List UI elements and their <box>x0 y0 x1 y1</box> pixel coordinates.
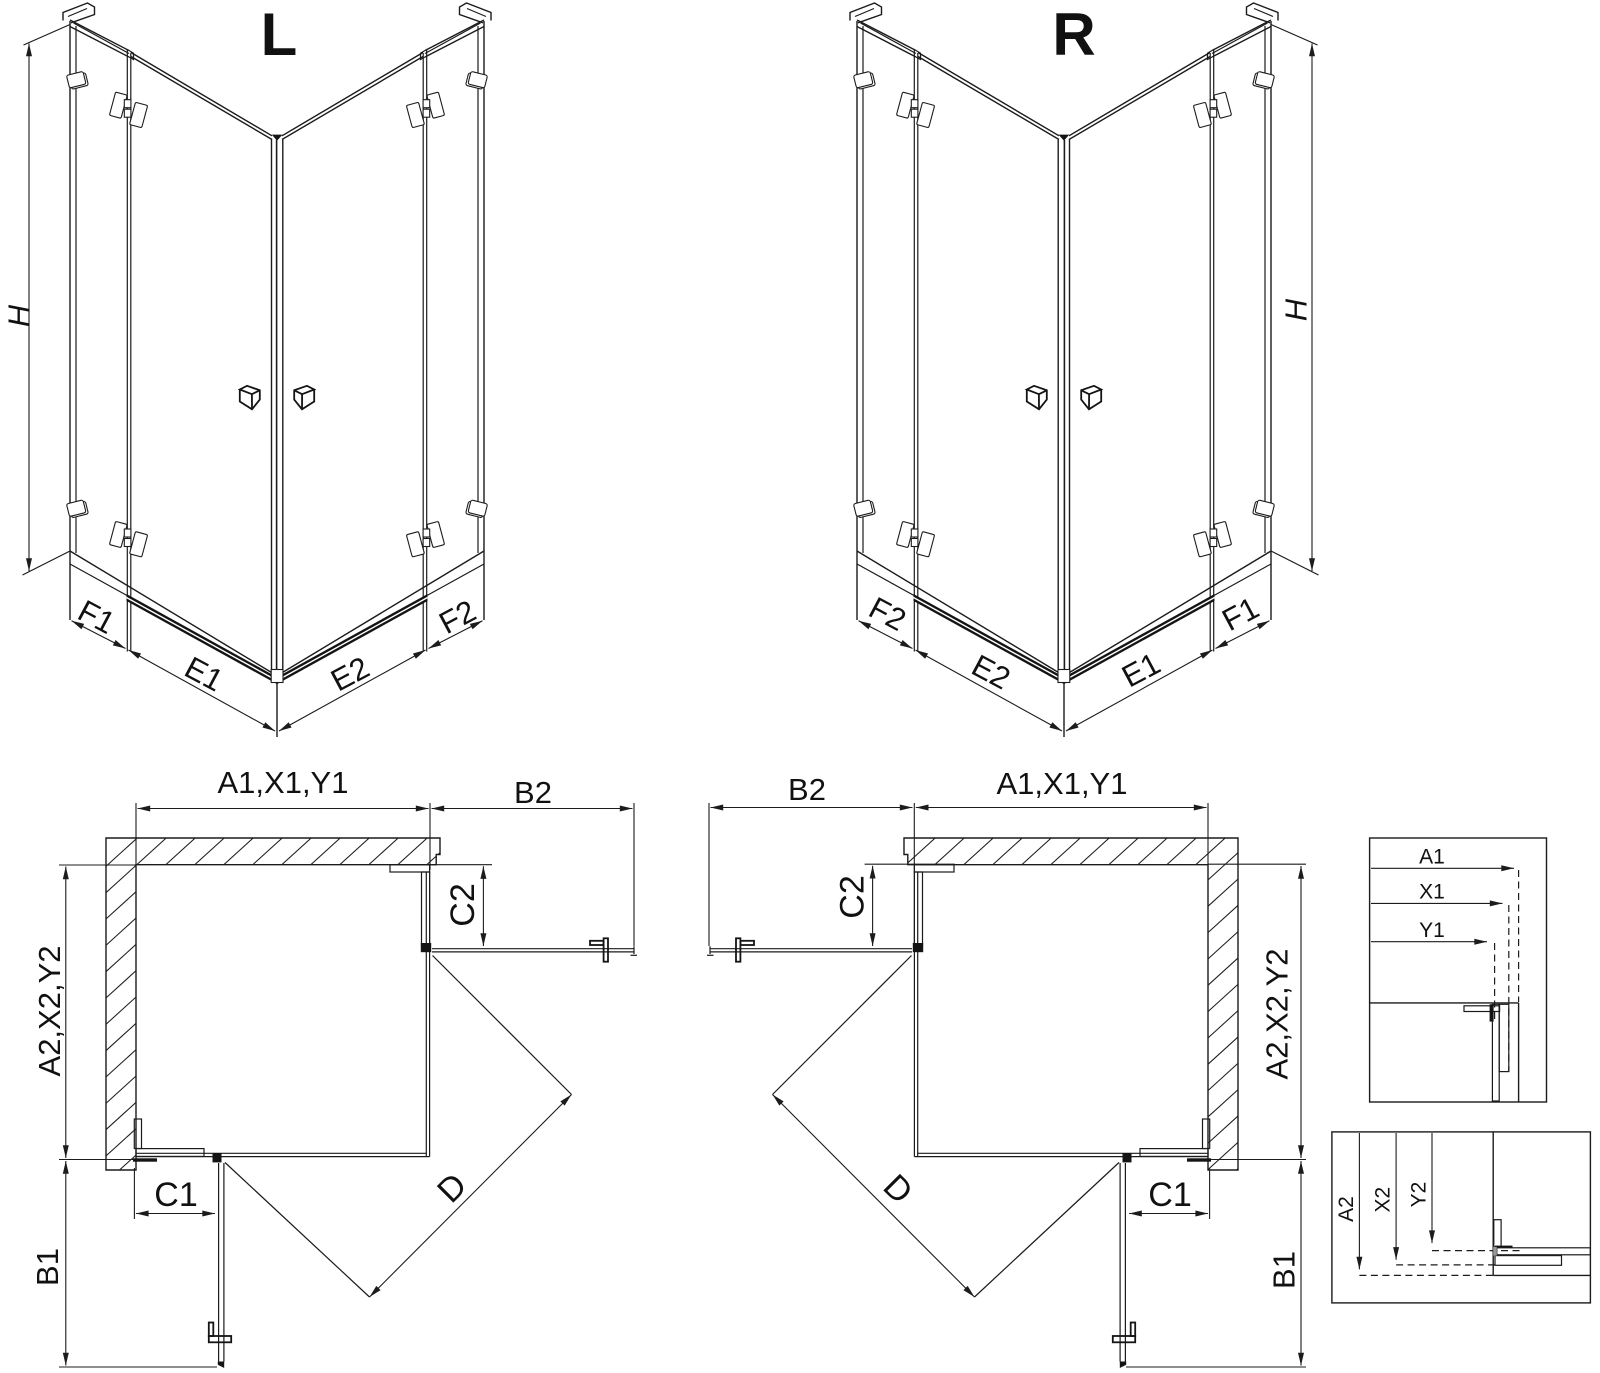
svg-text:B2: B2 <box>788 772 826 807</box>
svg-text:A1,X1,Y1: A1,X1,Y1 <box>997 766 1128 801</box>
svg-text:B1: B1 <box>1267 1251 1302 1289</box>
svg-text:A2,X2,Y2: A2,X2,Y2 <box>32 946 67 1077</box>
svg-text:Y1: Y1 <box>1419 919 1445 942</box>
svg-text:B2: B2 <box>514 775 552 810</box>
svg-text:C1: C1 <box>154 1176 197 1214</box>
svg-text:X1: X1 <box>1419 881 1445 904</box>
svg-text:H: H <box>2 304 37 327</box>
svg-text:Y2: Y2 <box>1407 1182 1430 1208</box>
svg-text:C2: C2 <box>444 883 482 926</box>
svg-text:R: R <box>1052 1 1095 68</box>
svg-text:A2,X2,Y2: A2,X2,Y2 <box>1260 949 1295 1080</box>
svg-text:H: H <box>1279 298 1314 321</box>
svg-text:B1: B1 <box>30 1248 65 1286</box>
svg-text:A2: A2 <box>1335 1196 1358 1222</box>
svg-text:C2: C2 <box>834 875 872 918</box>
svg-text:C1: C1 <box>1148 1176 1191 1214</box>
svg-text:L: L <box>261 1 298 68</box>
svg-text:A1: A1 <box>1419 846 1445 869</box>
svg-text:X2: X2 <box>1372 1187 1395 1213</box>
svg-text:A1,X1,Y1: A1,X1,Y1 <box>218 765 349 800</box>
